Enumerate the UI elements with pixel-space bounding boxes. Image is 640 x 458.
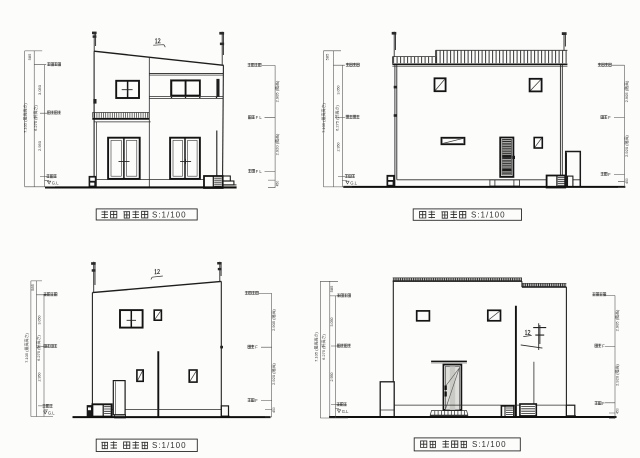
svg-text:2.950: 2.950: [38, 373, 42, 382]
svg-text:S:1/100: S:1/100: [152, 210, 187, 219]
svg-text:S:1/100: S:1/100: [152, 441, 187, 450]
svg-text:3.050: 3.050: [330, 318, 334, 327]
svg-text:F L: F L: [256, 169, 263, 174]
svg-text:F L: F L: [256, 115, 263, 120]
svg-text:6.275 (軒高さ): 6.275 (軒高さ): [334, 104, 340, 130]
svg-text:7.105 (最高高さ): 7.105 (最高高さ): [313, 331, 319, 361]
svg-text:2.920 (階高): 2.920 (階高): [274, 133, 280, 155]
svg-text:G.L: G.L: [52, 181, 59, 186]
svg-text:7.105 (最高高さ): 7.105 (最高高さ): [23, 332, 29, 362]
svg-text:2.920 (階高): 2.920 (階高): [270, 362, 276, 384]
svg-text:3.050: 3.050: [38, 316, 42, 325]
svg-text:6.275 (軒高さ): 6.275 (軒高さ): [32, 104, 38, 130]
svg-text:F: F: [255, 398, 258, 403]
svg-text:7.105 (最高高さ): 7.105 (最高高さ): [320, 102, 326, 132]
svg-text:585: 585: [27, 53, 32, 60]
svg-text:7.105 (最高高さ): 7.105 (最高高さ): [22, 102, 28, 132]
svg-text:G.L: G.L: [342, 409, 349, 414]
svg-text:2.920 (階高): 2.920 (階高): [623, 134, 629, 156]
svg-text:S:1/100: S:1/100: [471, 211, 506, 220]
svg-text:G.L: G.L: [48, 410, 55, 415]
svg-text:6.275 (軒高さ): 6.275 (軒高さ): [35, 334, 41, 360]
svg-text:3.050: 3.050: [337, 86, 341, 95]
svg-text:450: 450: [616, 408, 620, 414]
svg-text:F: F: [602, 344, 605, 349]
svg-text:2.905 (階高): 2.905 (階高): [614, 309, 620, 331]
svg-text:2.920 (階高): 2.920 (階高): [614, 363, 620, 385]
svg-text:2.950: 2.950: [337, 143, 341, 152]
svg-text:F: F: [602, 401, 605, 406]
svg-text:S:1/100: S:1/100: [472, 440, 507, 449]
svg-text:F: F: [255, 345, 258, 350]
svg-text:2.950: 2.950: [37, 140, 42, 151]
svg-text:3.050: 3.050: [37, 84, 42, 95]
svg-text:585: 585: [324, 53, 329, 60]
svg-text:450: 450: [272, 407, 276, 413]
svg-text:2.905 (階高): 2.905 (階高): [274, 80, 280, 102]
svg-text:450: 450: [276, 181, 280, 187]
svg-text:F: F: [608, 172, 611, 177]
svg-text:6.275 (軒高さ): 6.275 (軒高さ): [320, 333, 326, 359]
svg-text:F: F: [608, 115, 611, 120]
svg-text:450: 450: [625, 178, 629, 184]
svg-text:585: 585: [30, 283, 35, 290]
svg-text:2.950: 2.950: [330, 373, 334, 382]
svg-text:585: 585: [329, 285, 334, 292]
svg-text:2.905 (階高): 2.905 (階高): [623, 80, 629, 102]
svg-text:G.L: G.L: [350, 181, 357, 186]
svg-text:2.905 (階高): 2.905 (階高): [270, 308, 276, 330]
